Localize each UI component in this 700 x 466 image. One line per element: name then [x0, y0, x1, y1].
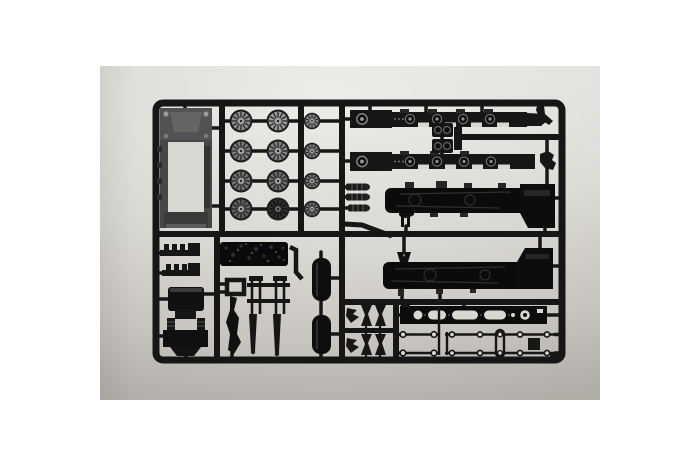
- wheel-grid: [222, 110, 342, 221]
- image-canvas: [0, 0, 700, 466]
- boiler-lower: [383, 248, 553, 296]
- pilot-part: [163, 318, 208, 356]
- driver-wheel: [267, 198, 290, 221]
- loco-frame-2: [350, 151, 556, 171]
- running-board-part: [400, 302, 547, 324]
- boiler-upper: [385, 181, 555, 228]
- valve-gear-part: [247, 276, 290, 356]
- driver-wheel-small: [304, 143, 321, 160]
- sprue-photo: [100, 66, 600, 400]
- driver-wheel-small: [304, 201, 321, 218]
- driver-wheel-small: [304, 113, 321, 130]
- cylinder-blocks: [432, 123, 453, 154]
- cab-roof-part: [168, 287, 204, 319]
- running-steps: [160, 243, 200, 276]
- tender-chassis-part: [157, 108, 212, 228]
- driver-wheel: [230, 170, 253, 193]
- driver-wheel: [267, 170, 290, 193]
- driver-wheel: [230, 140, 253, 163]
- leaf-spring-parts: [342, 184, 370, 212]
- driver-wheel: [267, 110, 290, 133]
- driver-wheel: [230, 198, 253, 221]
- driver-wheel-small: [304, 173, 321, 190]
- coal-load: [220, 242, 288, 266]
- photo-backdrop: [100, 66, 600, 400]
- driver-wheel: [267, 140, 290, 163]
- cab-window-frame: [227, 280, 244, 294]
- connecting-rod-part: [226, 296, 241, 354]
- driver-wheel: [230, 110, 253, 133]
